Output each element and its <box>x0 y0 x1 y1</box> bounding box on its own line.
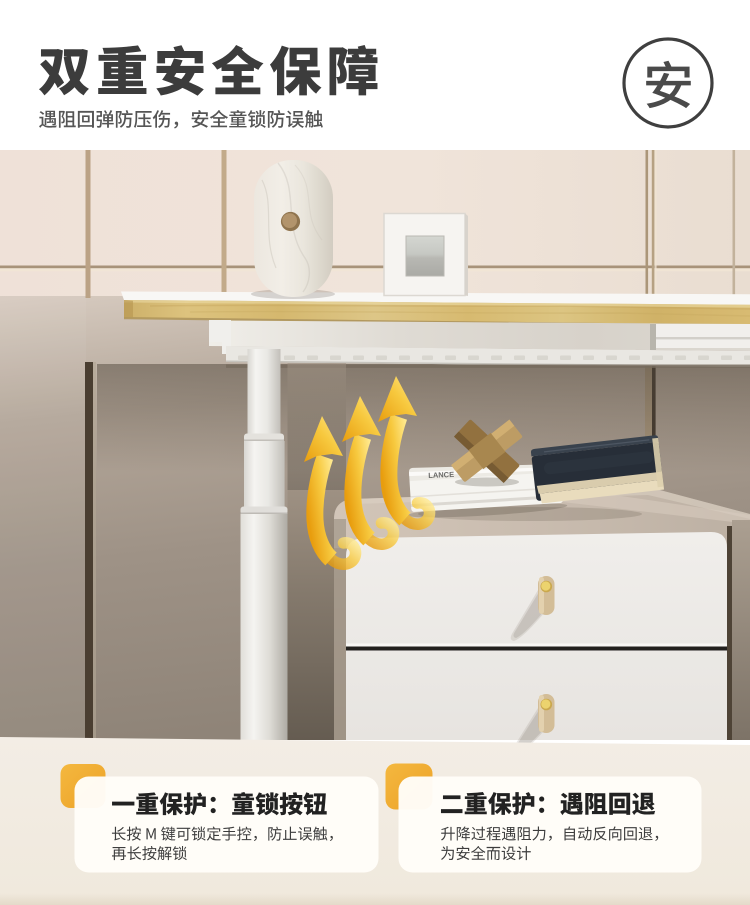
svg-text:LANCE: LANCE <box>428 470 454 480</box>
